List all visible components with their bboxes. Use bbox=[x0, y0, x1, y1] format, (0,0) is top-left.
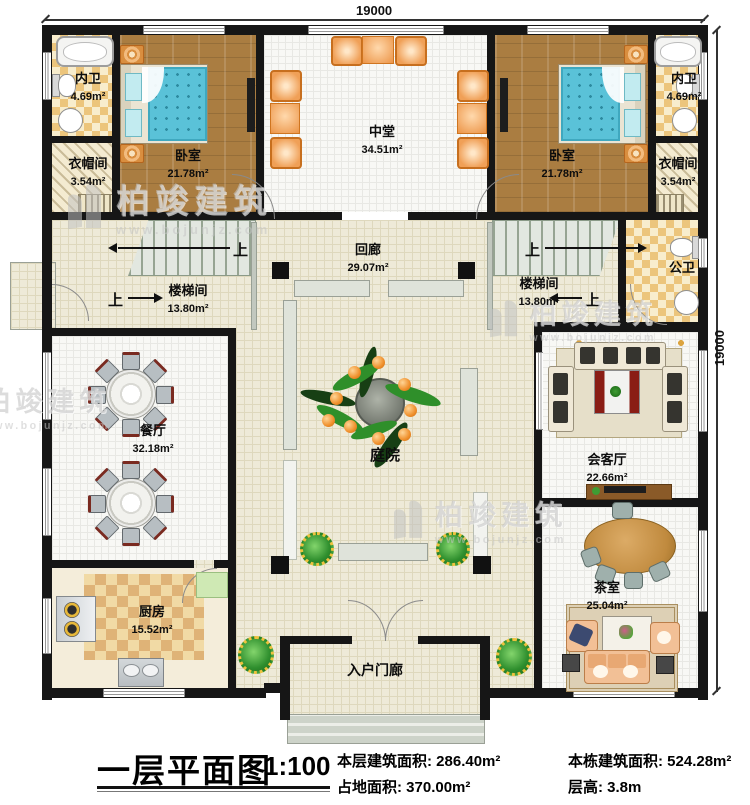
potted-plant bbox=[436, 532, 470, 566]
room-area: 22.66m² bbox=[587, 472, 628, 484]
burner bbox=[64, 602, 80, 618]
room-name: 卧室 bbox=[549, 148, 575, 163]
room-area: 13.80m² bbox=[519, 296, 560, 308]
side-table bbox=[656, 656, 674, 674]
wall bbox=[534, 322, 708, 332]
wall bbox=[52, 136, 112, 143]
window bbox=[699, 238, 707, 268]
tree-fruit bbox=[322, 414, 335, 427]
wall bbox=[280, 636, 290, 720]
armchair bbox=[566, 620, 598, 652]
sofa-cushion bbox=[553, 401, 568, 423]
stat-floor-height: 层高: 3.8m bbox=[568, 776, 641, 797]
window bbox=[43, 468, 51, 536]
sofa-cushion bbox=[603, 347, 618, 364]
colonnade-beam bbox=[294, 280, 370, 297]
dimension-right: 19000 bbox=[712, 330, 727, 366]
red-mat bbox=[666, 333, 696, 353]
dining-chair bbox=[88, 386, 106, 404]
pillow bbox=[125, 73, 142, 101]
throw-blanket bbox=[568, 623, 594, 648]
arrow-head-icon bbox=[108, 243, 117, 253]
potted-plant bbox=[238, 636, 274, 674]
room-area: 29.07m² bbox=[348, 262, 389, 274]
stove bbox=[56, 596, 96, 642]
room-label-bedroom-right: 卧室21.78m² bbox=[542, 148, 583, 182]
sofa bbox=[584, 650, 650, 684]
window bbox=[699, 350, 707, 432]
room-name: 内卫 bbox=[671, 71, 697, 86]
dimension-top: 19000 bbox=[356, 3, 392, 18]
toilet-tank bbox=[692, 236, 699, 259]
tree-fruit bbox=[344, 420, 357, 433]
room-label-bathroom-left: 内卫4.69m² bbox=[71, 71, 106, 105]
stat-building-area: 本栋建筑面积: 524.28m² bbox=[568, 750, 731, 771]
room-area: 21.78m² bbox=[168, 168, 209, 180]
hall-table bbox=[270, 103, 300, 134]
sink bbox=[672, 108, 697, 133]
sofa-cushion bbox=[553, 373, 568, 395]
shoe-rack bbox=[656, 194, 684, 214]
room-area: 4.69m² bbox=[71, 91, 106, 103]
sofa-cushion bbox=[580, 347, 595, 364]
room-label-bedroom-left: 卧室21.78m² bbox=[168, 148, 209, 182]
wall bbox=[52, 328, 236, 336]
bathtub-basin bbox=[660, 42, 696, 62]
table-art bbox=[619, 625, 633, 639]
tv bbox=[500, 78, 508, 132]
stair-arrow bbox=[128, 297, 156, 299]
tv bbox=[247, 78, 255, 132]
dimension-tick bbox=[700, 14, 709, 23]
porch-steps bbox=[287, 714, 485, 744]
room-label-tea-room: 茶室25.04m² bbox=[587, 580, 628, 614]
room-name: 内卫 bbox=[75, 71, 101, 86]
stair-up-label: 上 bbox=[233, 239, 248, 260]
bathtub-basin bbox=[63, 42, 107, 62]
room-label-bathroom-right: 内卫4.69m² bbox=[667, 71, 702, 105]
tv bbox=[604, 486, 646, 493]
nightstand bbox=[624, 144, 648, 163]
stair-up-label: 上 bbox=[525, 239, 540, 260]
room-name: 衣帽间 bbox=[68, 156, 107, 171]
room-name: 楼梯间 bbox=[168, 283, 207, 298]
bathtub bbox=[654, 36, 702, 67]
sink-basin bbox=[142, 664, 159, 677]
room-name: 庭院 bbox=[370, 447, 400, 464]
room-label-stair-right: 楼梯间13.80m² bbox=[519, 276, 560, 310]
colonnade-strip bbox=[473, 492, 488, 560]
dining-chair bbox=[122, 461, 140, 479]
window bbox=[308, 26, 444, 34]
hall-chair bbox=[270, 137, 302, 169]
colonnade-strip bbox=[283, 460, 297, 560]
potted-plant bbox=[300, 532, 334, 566]
sink bbox=[674, 290, 699, 315]
tree-fruit bbox=[404, 404, 417, 417]
window bbox=[527, 26, 609, 34]
window bbox=[143, 26, 225, 34]
coffee-table bbox=[602, 616, 652, 652]
bed-left bbox=[120, 64, 208, 144]
sofa-cushion bbox=[626, 347, 641, 364]
hall-chair bbox=[457, 137, 489, 169]
window bbox=[43, 352, 51, 420]
room-label-zhongtang: 中堂34.51m² bbox=[362, 124, 403, 158]
stair-rail bbox=[251, 222, 257, 330]
nightstand bbox=[120, 144, 144, 163]
stair-rail bbox=[487, 222, 493, 330]
room-name: 茶室 bbox=[594, 580, 620, 595]
dining-chair bbox=[122, 528, 140, 546]
stair-arrow bbox=[118, 247, 230, 249]
tree-fruit bbox=[398, 428, 411, 441]
room-label-dining: 餐厅32.18m² bbox=[133, 423, 174, 457]
colonnade-strip bbox=[283, 300, 297, 450]
page-title: 一层平面图 bbox=[97, 744, 272, 792]
window bbox=[43, 598, 51, 654]
seat-pillow bbox=[657, 631, 671, 644]
courtyard-step bbox=[338, 543, 428, 561]
window bbox=[43, 52, 51, 100]
pillow bbox=[624, 73, 641, 101]
colonnade-beam bbox=[388, 280, 464, 297]
hall-chair bbox=[331, 36, 363, 66]
column-post bbox=[271, 556, 289, 574]
dimension-tick bbox=[712, 686, 721, 695]
room-label-courtyard: 庭院 bbox=[370, 448, 400, 465]
hall-chair bbox=[270, 70, 302, 102]
toilet bbox=[670, 238, 694, 257]
room-label-porch: 入户门廊 bbox=[347, 663, 403, 680]
dimension-line-top bbox=[45, 19, 705, 21]
stair-up-label: 上 bbox=[108, 289, 123, 310]
tree-fruit bbox=[398, 378, 411, 391]
sink bbox=[58, 108, 83, 133]
floor-plan: 19000 19000 上 上 上 上 bbox=[0, 0, 750, 805]
room-area: 32.18m² bbox=[133, 443, 174, 455]
room-name: 回廊 bbox=[355, 242, 381, 257]
room-name: 会客厅 bbox=[587, 452, 626, 467]
wall bbox=[656, 136, 698, 143]
dining-chair bbox=[156, 386, 174, 404]
sofa-cushion bbox=[646, 347, 660, 364]
bed-right bbox=[558, 64, 646, 144]
room-label-reception: 会客厅22.66m² bbox=[587, 452, 628, 486]
cabinet-plant bbox=[592, 487, 600, 495]
seat-pillow bbox=[623, 665, 638, 678]
armchair bbox=[650, 622, 680, 654]
arrow-head-icon bbox=[638, 243, 647, 253]
dining-chair bbox=[88, 495, 106, 513]
room-name: 楼梯间 bbox=[519, 276, 558, 291]
colonnade-strip bbox=[460, 368, 478, 456]
room-name: 公卫 bbox=[669, 260, 695, 275]
room-name: 入户门廊 bbox=[347, 662, 403, 678]
sofa-cushion bbox=[667, 401, 682, 423]
stair-arrow bbox=[556, 297, 582, 299]
burner bbox=[64, 621, 80, 637]
bathtub bbox=[56, 36, 114, 67]
shoe-rack bbox=[78, 194, 114, 214]
room-label-corridor: 回廊29.07m² bbox=[348, 242, 389, 276]
nightstand bbox=[120, 45, 144, 64]
room-area: 4.69m² bbox=[667, 91, 702, 103]
tree-fruit bbox=[330, 392, 343, 405]
window bbox=[536, 352, 543, 430]
stair-up-label: 上 bbox=[585, 289, 600, 310]
sink-basin bbox=[123, 664, 140, 677]
room-area: 15.52m² bbox=[132, 624, 173, 636]
dining-chair bbox=[122, 352, 140, 370]
sofa-cushion bbox=[608, 654, 626, 668]
hall-chair bbox=[457, 70, 489, 102]
room-name: 餐厅 bbox=[140, 423, 166, 438]
window bbox=[103, 689, 185, 697]
title-rule bbox=[97, 791, 330, 792]
column-post bbox=[272, 262, 289, 279]
wall bbox=[280, 636, 352, 644]
fridge bbox=[196, 572, 228, 598]
room-label-kitchen: 厨房15.52m² bbox=[132, 604, 173, 638]
nightstand bbox=[624, 45, 648, 64]
room-name: 厨房 bbox=[139, 604, 165, 619]
room-label-cloakroom-left: 衣帽间3.54m² bbox=[68, 156, 107, 190]
arrow-head-icon bbox=[154, 293, 163, 303]
room-label-cloakroom-right: 衣帽间3.54m² bbox=[658, 156, 697, 190]
tree-fruit bbox=[372, 432, 385, 445]
wall bbox=[618, 220, 626, 328]
room-name: 衣帽间 bbox=[658, 156, 697, 171]
tea-chair bbox=[612, 502, 633, 519]
seat-pillow bbox=[593, 665, 608, 678]
room-label-stair-left: 楼梯间13.80m² bbox=[168, 283, 209, 317]
room-name: 卧室 bbox=[175, 148, 201, 163]
title-rule bbox=[97, 786, 330, 789]
kitchen-sink bbox=[118, 658, 164, 687]
column-post bbox=[473, 556, 491, 574]
room-area: 3.54m² bbox=[661, 176, 696, 188]
room-label-public-bath: 公卫 bbox=[669, 260, 695, 277]
room-area: 34.51m² bbox=[362, 144, 403, 156]
tree-fruit bbox=[348, 366, 361, 379]
pillow bbox=[624, 109, 641, 137]
wall bbox=[264, 683, 280, 693]
plan-scale: 1:100 bbox=[264, 751, 331, 782]
sofa-cushion bbox=[667, 373, 682, 395]
wall bbox=[214, 560, 236, 568]
table-plant bbox=[610, 386, 621, 397]
sofa bbox=[662, 366, 688, 432]
room-area: 3.54m² bbox=[71, 176, 106, 188]
stat-floor-area: 本层建筑面积: 286.40m² bbox=[337, 750, 500, 771]
sofa bbox=[548, 366, 574, 432]
room-area: 21.78m² bbox=[542, 168, 583, 180]
hall-table bbox=[457, 103, 487, 134]
column-post bbox=[458, 262, 475, 279]
room-area: 25.04m² bbox=[587, 600, 628, 612]
pillow bbox=[125, 109, 142, 137]
wall bbox=[52, 560, 194, 568]
potted-plant bbox=[496, 638, 532, 676]
sofa bbox=[574, 342, 666, 370]
wall bbox=[228, 328, 236, 690]
stat-footprint-area: 占地面积: 370.00m² bbox=[337, 776, 470, 797]
hall-table bbox=[362, 36, 394, 64]
wall bbox=[480, 636, 490, 720]
room-area: 13.80m² bbox=[168, 303, 209, 315]
window bbox=[699, 530, 707, 612]
tree-fruit bbox=[372, 356, 385, 369]
hall-chair bbox=[395, 36, 427, 66]
side-table bbox=[562, 654, 580, 672]
room-name: 中堂 bbox=[369, 124, 395, 139]
dining-chair bbox=[156, 495, 174, 513]
